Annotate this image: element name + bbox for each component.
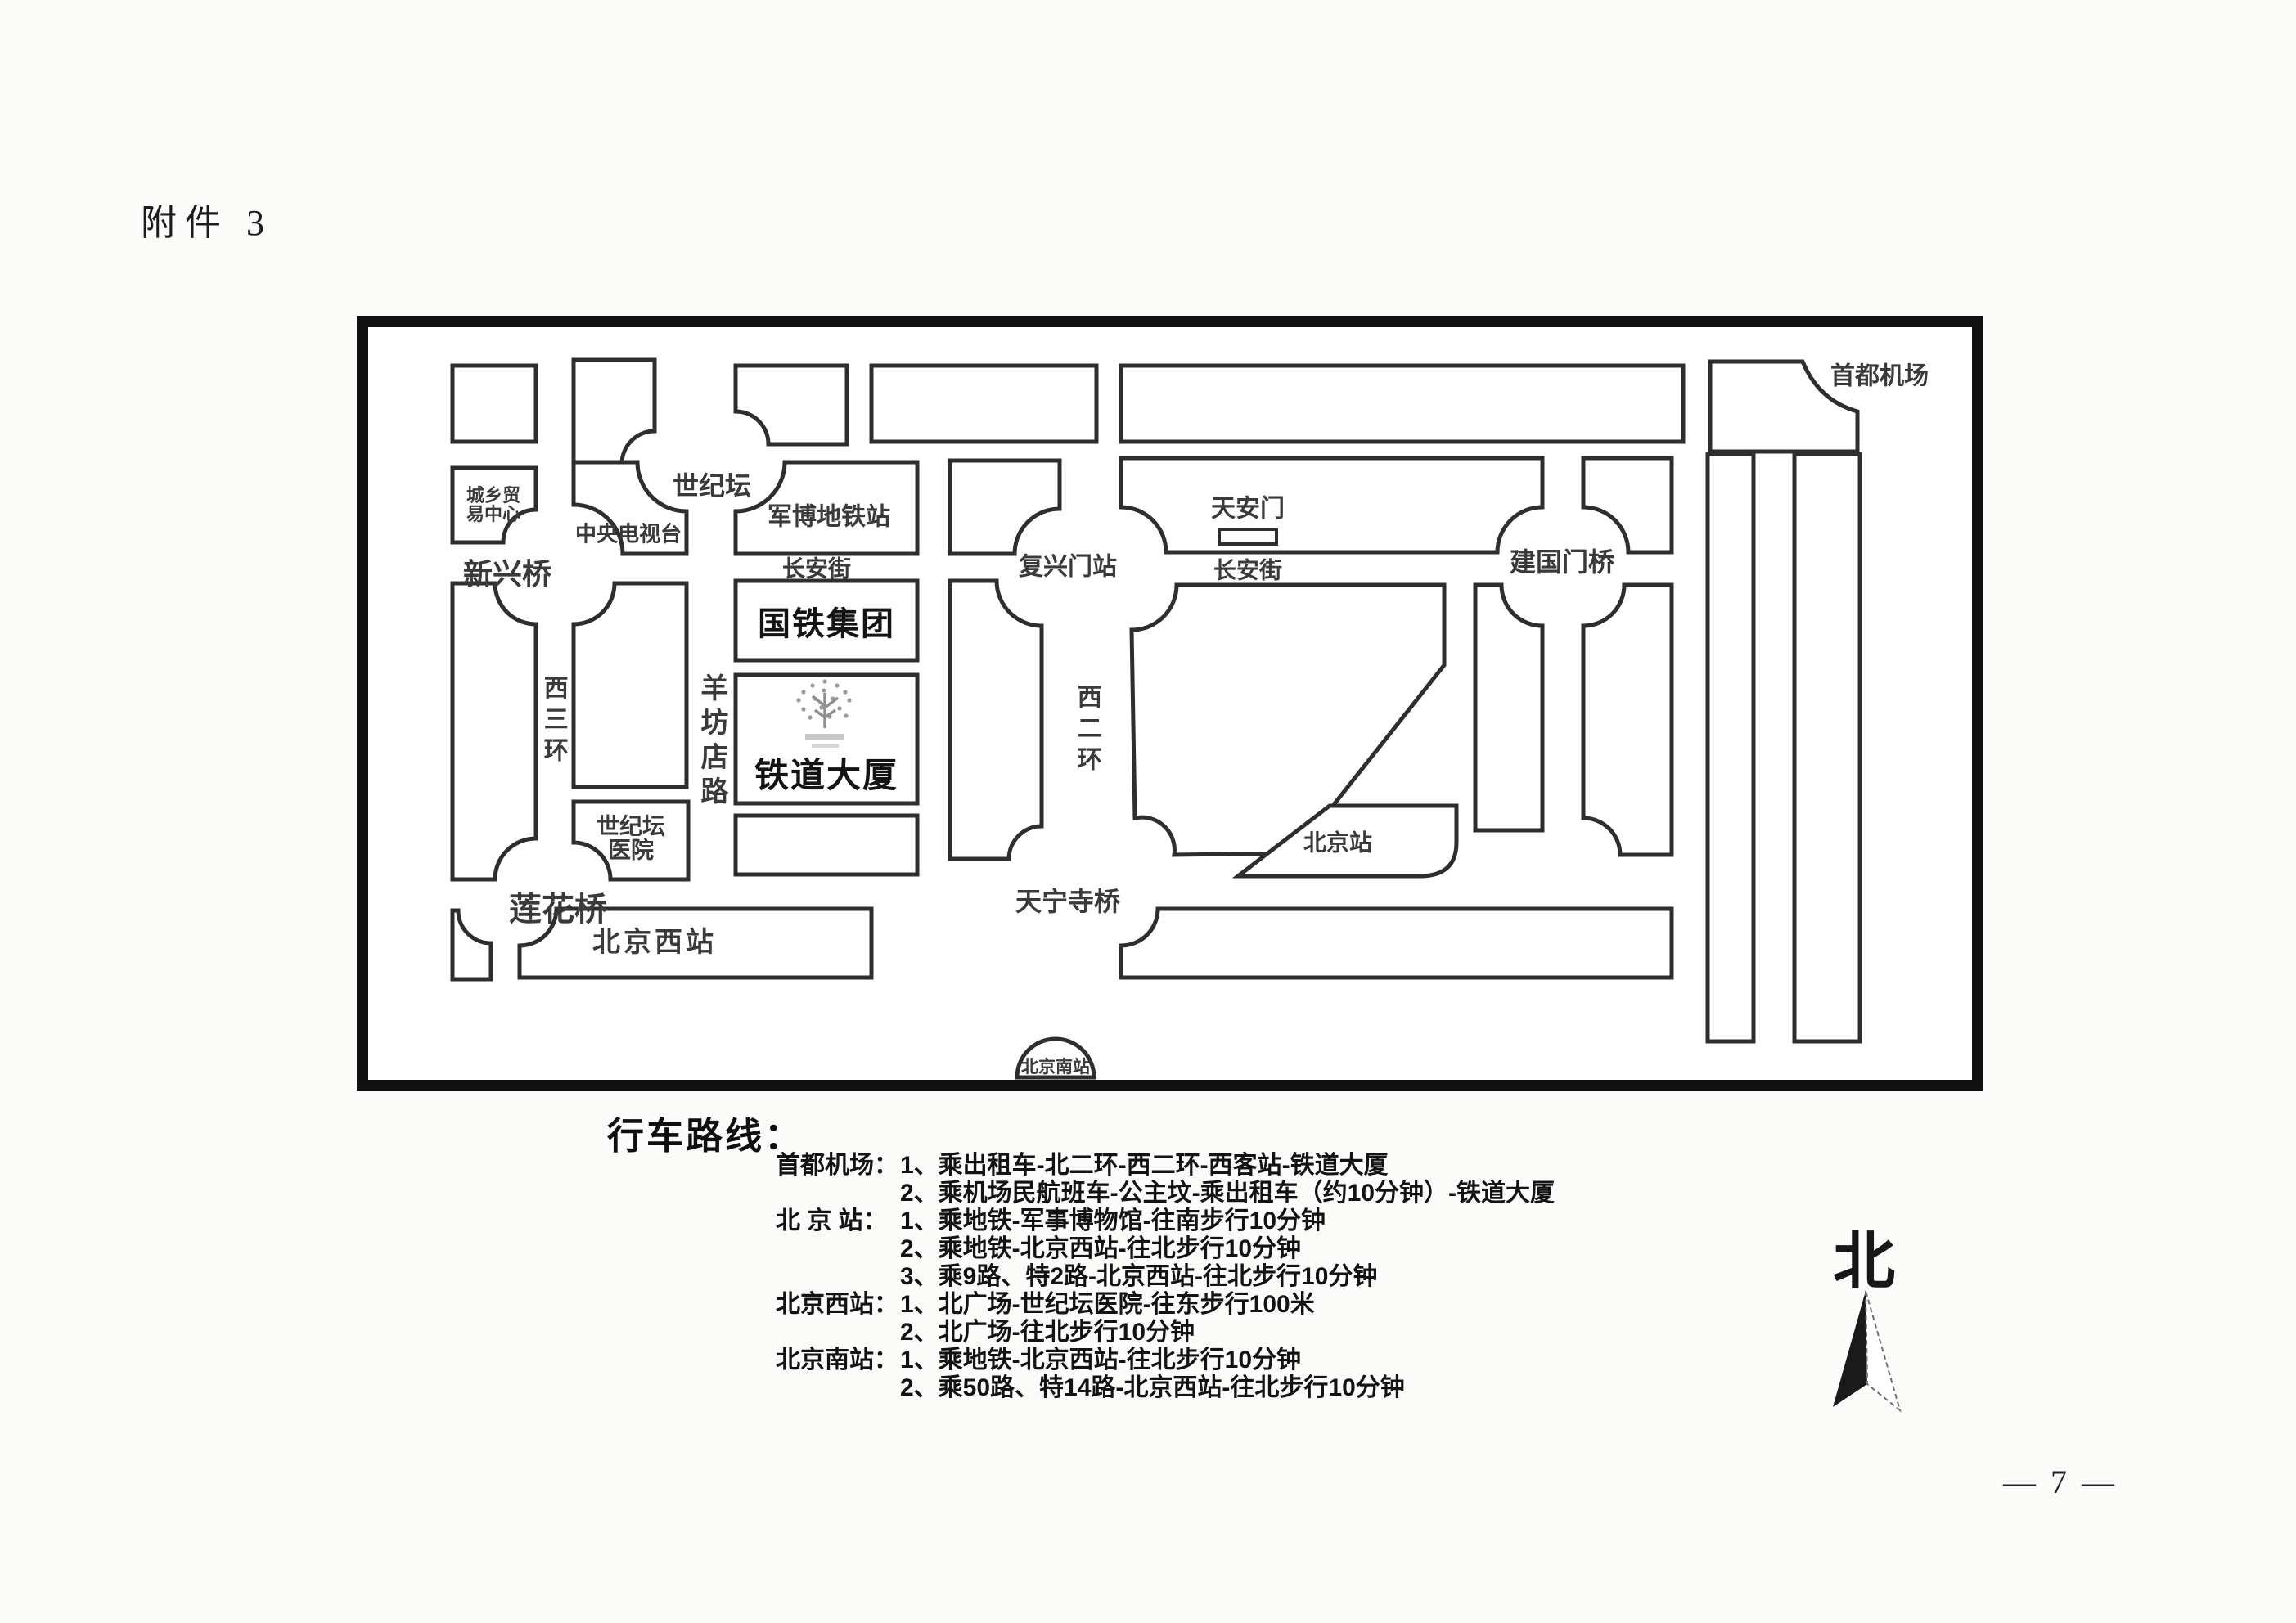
tiananmen-marker [1219,529,1276,544]
map-label-lianhua-bridge: 莲花桥 [509,892,607,927]
route-row: 首都机场： 1、乘出租车-北二环-西二环-西客站-铁道大厦 [776,1144,1741,1172]
map-drawing [356,315,1984,1092]
map-label-changan-west: 长安街 [782,556,851,580]
route-row: 2、乘机场民航班车-公主坟-乘出租车（约10分钟）-铁道大厦 [776,1172,1741,1200]
routes-title: 行车路线： [607,1106,804,1159]
map-label-tianningsi-bridge: 天宁寺桥 [1015,888,1120,916]
map-block [1583,585,1672,855]
route-origin [776,1311,900,1339]
map-label-shijitan: 世纪坛 [673,473,751,501]
route-row: 2、乘地铁-北京西站-往北步行10分钟 [776,1228,1741,1256]
map-label-xinxing-bridge: 新兴桥 [463,559,551,590]
route-origin [776,1228,900,1256]
route-row: 2、乘50路、特14路-北京西站-往北步行10分钟 [776,1367,1741,1395]
route-origin: 首都机场： [776,1144,900,1172]
page-number: — 7 — [2003,1463,2118,1501]
map-block [1121,366,1683,442]
map-label-beijing-station: 北京站 [1303,830,1372,854]
map-label-tiananmen: 天安门 [1211,496,1285,522]
map-label-cctv: 中央电视台 [575,523,682,545]
map-label-jianguomen-bridge: 建国门桥 [1510,549,1614,577]
map-block [1121,909,1672,978]
route-row: 3、乘9路、特2路-北京西站-往北步行10分钟 [776,1256,1741,1284]
map-block [950,581,1042,859]
map-label-xierhuan: 西二环 [1074,684,1100,777]
document-page: { "page": { "attachment_label": "附件 3", … [0,0,2296,1623]
map-label-city-trade: 城乡贸易中心 [466,486,520,524]
route-origin: 北 京 站： [776,1200,900,1228]
route-text: 2、乘50路、特14路-北京西站-往北步行10分钟 [900,1367,1405,1395]
route-text: 3、乘9路、特2路-北京西站-往北步行10分钟 [900,1256,1377,1284]
route-row: 2、北广场-往北步行10分钟 [776,1311,1741,1339]
map-label-beijing-west-station: 北京西站 [592,928,717,958]
route-origin [776,1256,900,1284]
map-block [452,583,536,879]
map-label-tiedao-mansion: 铁道大厦 [754,758,898,794]
map-label-hospital: 世纪坛医院 [597,815,665,863]
map-block-tiananmen [1121,458,1542,552]
route-origin: 北京西站： [776,1284,900,1311]
route-origin [776,1172,900,1200]
route-row: 北京南站： 1、乘地铁-北京西站-往北步行10分钟 [776,1339,1741,1367]
map-label-guotie-group: 国铁集团 [758,607,895,641]
map-block [736,816,917,874]
route-text: 2、乘地铁-北京西站-往北步行10分钟 [900,1228,1301,1256]
route-row: 北 京 站： 1、乘地铁-军事博物馆-往南步行10分钟 [776,1200,1741,1228]
route-row: 北京西站： 1、北广场-世纪坛医院-往东步行100米 [776,1284,1741,1311]
map-label-beijing-south-station: 北京南站 [1021,1059,1090,1077]
map-label-capital-airport: 首都机场 [1830,363,1929,389]
route-text: 1、北广场-世纪坛医院-往东步行100米 [900,1284,1315,1311]
route-text: 1、乘出租车-北二环-西二环-西客站-铁道大厦 [900,1144,1389,1172]
compass-arrow-icon [1825,1286,1907,1421]
route-origin: 北京南站： [776,1339,900,1367]
map-label-changan-east: 长安街 [1213,558,1282,582]
map-label-yangfangdian-road: 羊坊店路 [696,673,726,811]
map-label-fuxingmen-station: 复兴门站 [1019,554,1117,580]
route-origin [776,1367,900,1395]
location-map: 城乡贸易中心 世纪坛 中央电视台 军博地铁站 长安街 新兴桥 国铁集团 西三环 … [356,315,1984,1092]
map-label-junbo-station: 军博地铁站 [768,504,890,530]
route-text: 1、乘地铁-北京西站-往北步行10分钟 [900,1339,1301,1367]
attachment-label: 附件 3 [141,193,272,245]
map-strip [1708,454,1754,1041]
route-text: 2、北广场-往北步行10分钟 [900,1311,1195,1339]
map-label-xisanhuan: 西三环 [540,675,566,768]
route-text: 1、乘地铁-军事博物馆-往南步行10分钟 [900,1200,1326,1228]
map-block [871,366,1096,442]
map-strip [1794,454,1860,1041]
route-text: 2、乘机场民航班车-公主坟-乘出租车（约10分钟）-铁道大厦 [900,1172,1555,1200]
map-block [452,366,536,442]
